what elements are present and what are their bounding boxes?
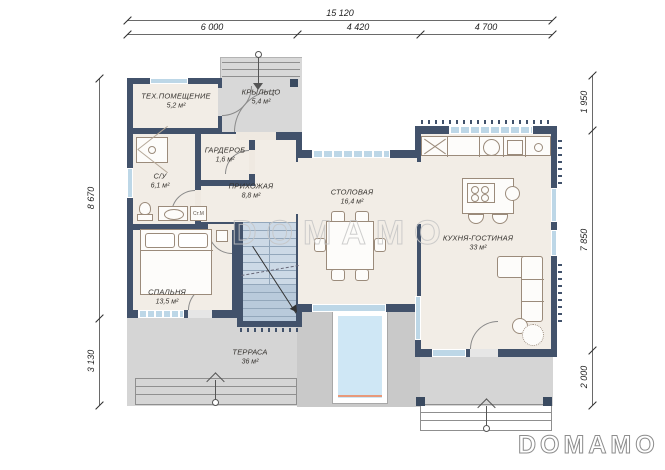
window-dining-top bbox=[312, 150, 390, 158]
room-label-porch: КРЫЛЬЦО 5,4 м² bbox=[242, 88, 281, 107]
porch-step bbox=[222, 62, 300, 63]
dim-right-1: 1 950 bbox=[579, 91, 589, 114]
window-kitchen-right-a bbox=[551, 188, 557, 222]
brand-logo: DOMAMO bbox=[518, 431, 659, 460]
step-node bbox=[483, 425, 490, 432]
step-line bbox=[135, 394, 297, 395]
wall-hatch bbox=[558, 262, 562, 322]
dim-top-seg-2: 4 420 bbox=[347, 22, 370, 32]
pool-accent-line bbox=[338, 395, 382, 397]
wall-hatch bbox=[558, 138, 562, 184]
door-gap-kitchen-terrace bbox=[470, 349, 498, 357]
terrace-column bbox=[416, 397, 425, 406]
dining-chair bbox=[374, 238, 386, 252]
dim-right-2: 7 850 bbox=[579, 229, 589, 252]
window-kitchen-right-b bbox=[551, 230, 557, 256]
wall-hatch bbox=[421, 120, 551, 124]
porch-column bbox=[290, 79, 298, 87]
dim-top-seg-1: 6 000 bbox=[201, 22, 224, 32]
dining-chair bbox=[331, 269, 345, 281]
room-label-dining: СТОЛОВАЯ 16,4 м² bbox=[331, 188, 374, 207]
burner-icon bbox=[534, 143, 543, 152]
dim-line-left bbox=[99, 78, 100, 405]
dining-table bbox=[326, 221, 374, 270]
dim-left-2: 3 130 bbox=[86, 350, 96, 373]
window-kitchen-top bbox=[449, 126, 533, 134]
room-label-su: С/У 6,1 м² bbox=[151, 172, 170, 191]
cooktop-icon bbox=[467, 183, 495, 203]
room-label-bedroom: СПАЛЬНЯ 13,5 м² bbox=[148, 288, 186, 307]
step-stem bbox=[486, 406, 487, 426]
plant-icon bbox=[522, 324, 544, 346]
dim-left-1: 8 670 bbox=[86, 187, 96, 210]
porch-arrow-stem bbox=[258, 58, 259, 84]
dim-line-total bbox=[127, 20, 552, 21]
room-label-garderob: ГАРДЕРОБ 1,6 м² bbox=[205, 146, 246, 165]
porch-node bbox=[255, 51, 262, 58]
step-stem bbox=[215, 380, 216, 400]
island-sink bbox=[505, 186, 520, 201]
dim-top-seg-3: 4 700 bbox=[475, 22, 498, 32]
porch-step bbox=[222, 76, 300, 77]
toilet-tank bbox=[137, 214, 153, 221]
shower-tray bbox=[136, 137, 168, 163]
room-label-hall: ПРИХОЖАЯ 8,8 м² bbox=[229, 182, 274, 201]
bed bbox=[140, 229, 212, 295]
window-su-left bbox=[127, 168, 133, 198]
bathroom-vanity bbox=[158, 206, 188, 221]
nightstand bbox=[216, 230, 228, 242]
kitchen-counter bbox=[421, 136, 551, 156]
dim-line-right bbox=[592, 75, 593, 405]
dim-right-3: 2 000 bbox=[579, 366, 589, 389]
room-label-kitchen: КУХНЯ-ГОСТИНАЯ 33 м² bbox=[443, 234, 513, 253]
pool-water bbox=[338, 316, 382, 398]
sofa-vertical-arm bbox=[521, 256, 543, 322]
dining-chair bbox=[355, 269, 369, 281]
door-gap-bedroom-terrace bbox=[188, 310, 212, 318]
room-label-tech: ТЕХ.ПОМЕЩЕНИЕ 5,2 м² bbox=[141, 92, 211, 111]
window-kitchen-left bbox=[415, 296, 421, 340]
staircase bbox=[243, 222, 296, 321]
window-dining-bottom bbox=[312, 304, 386, 312]
washing-machine-label: Ст.М bbox=[191, 207, 206, 222]
door-gap-entrance bbox=[236, 132, 276, 140]
dining-chair bbox=[314, 238, 326, 252]
room-label-terrace: ТЕРРАСА 36 м² bbox=[232, 348, 267, 367]
wall-hatch bbox=[240, 328, 300, 332]
opening-dining-kitchen bbox=[413, 162, 423, 224]
oven-icon bbox=[507, 140, 523, 155]
window-tech-top bbox=[150, 78, 188, 84]
window-kitchen-bottom bbox=[432, 349, 466, 357]
dim-line-segments bbox=[127, 34, 552, 35]
floor-plan: Ст.М bbox=[0, 0, 665, 470]
terrace-column bbox=[543, 397, 552, 406]
step-node bbox=[212, 399, 219, 406]
door-gap-garderob bbox=[249, 150, 255, 174]
washing-machine: Ст.М bbox=[190, 206, 207, 221]
kitchen-sink-icon bbox=[483, 139, 500, 156]
dim-top-total: 15 120 bbox=[326, 8, 354, 18]
porch-step bbox=[222, 69, 300, 70]
pool bbox=[332, 310, 388, 404]
window-bedroom-bottom bbox=[138, 310, 184, 318]
